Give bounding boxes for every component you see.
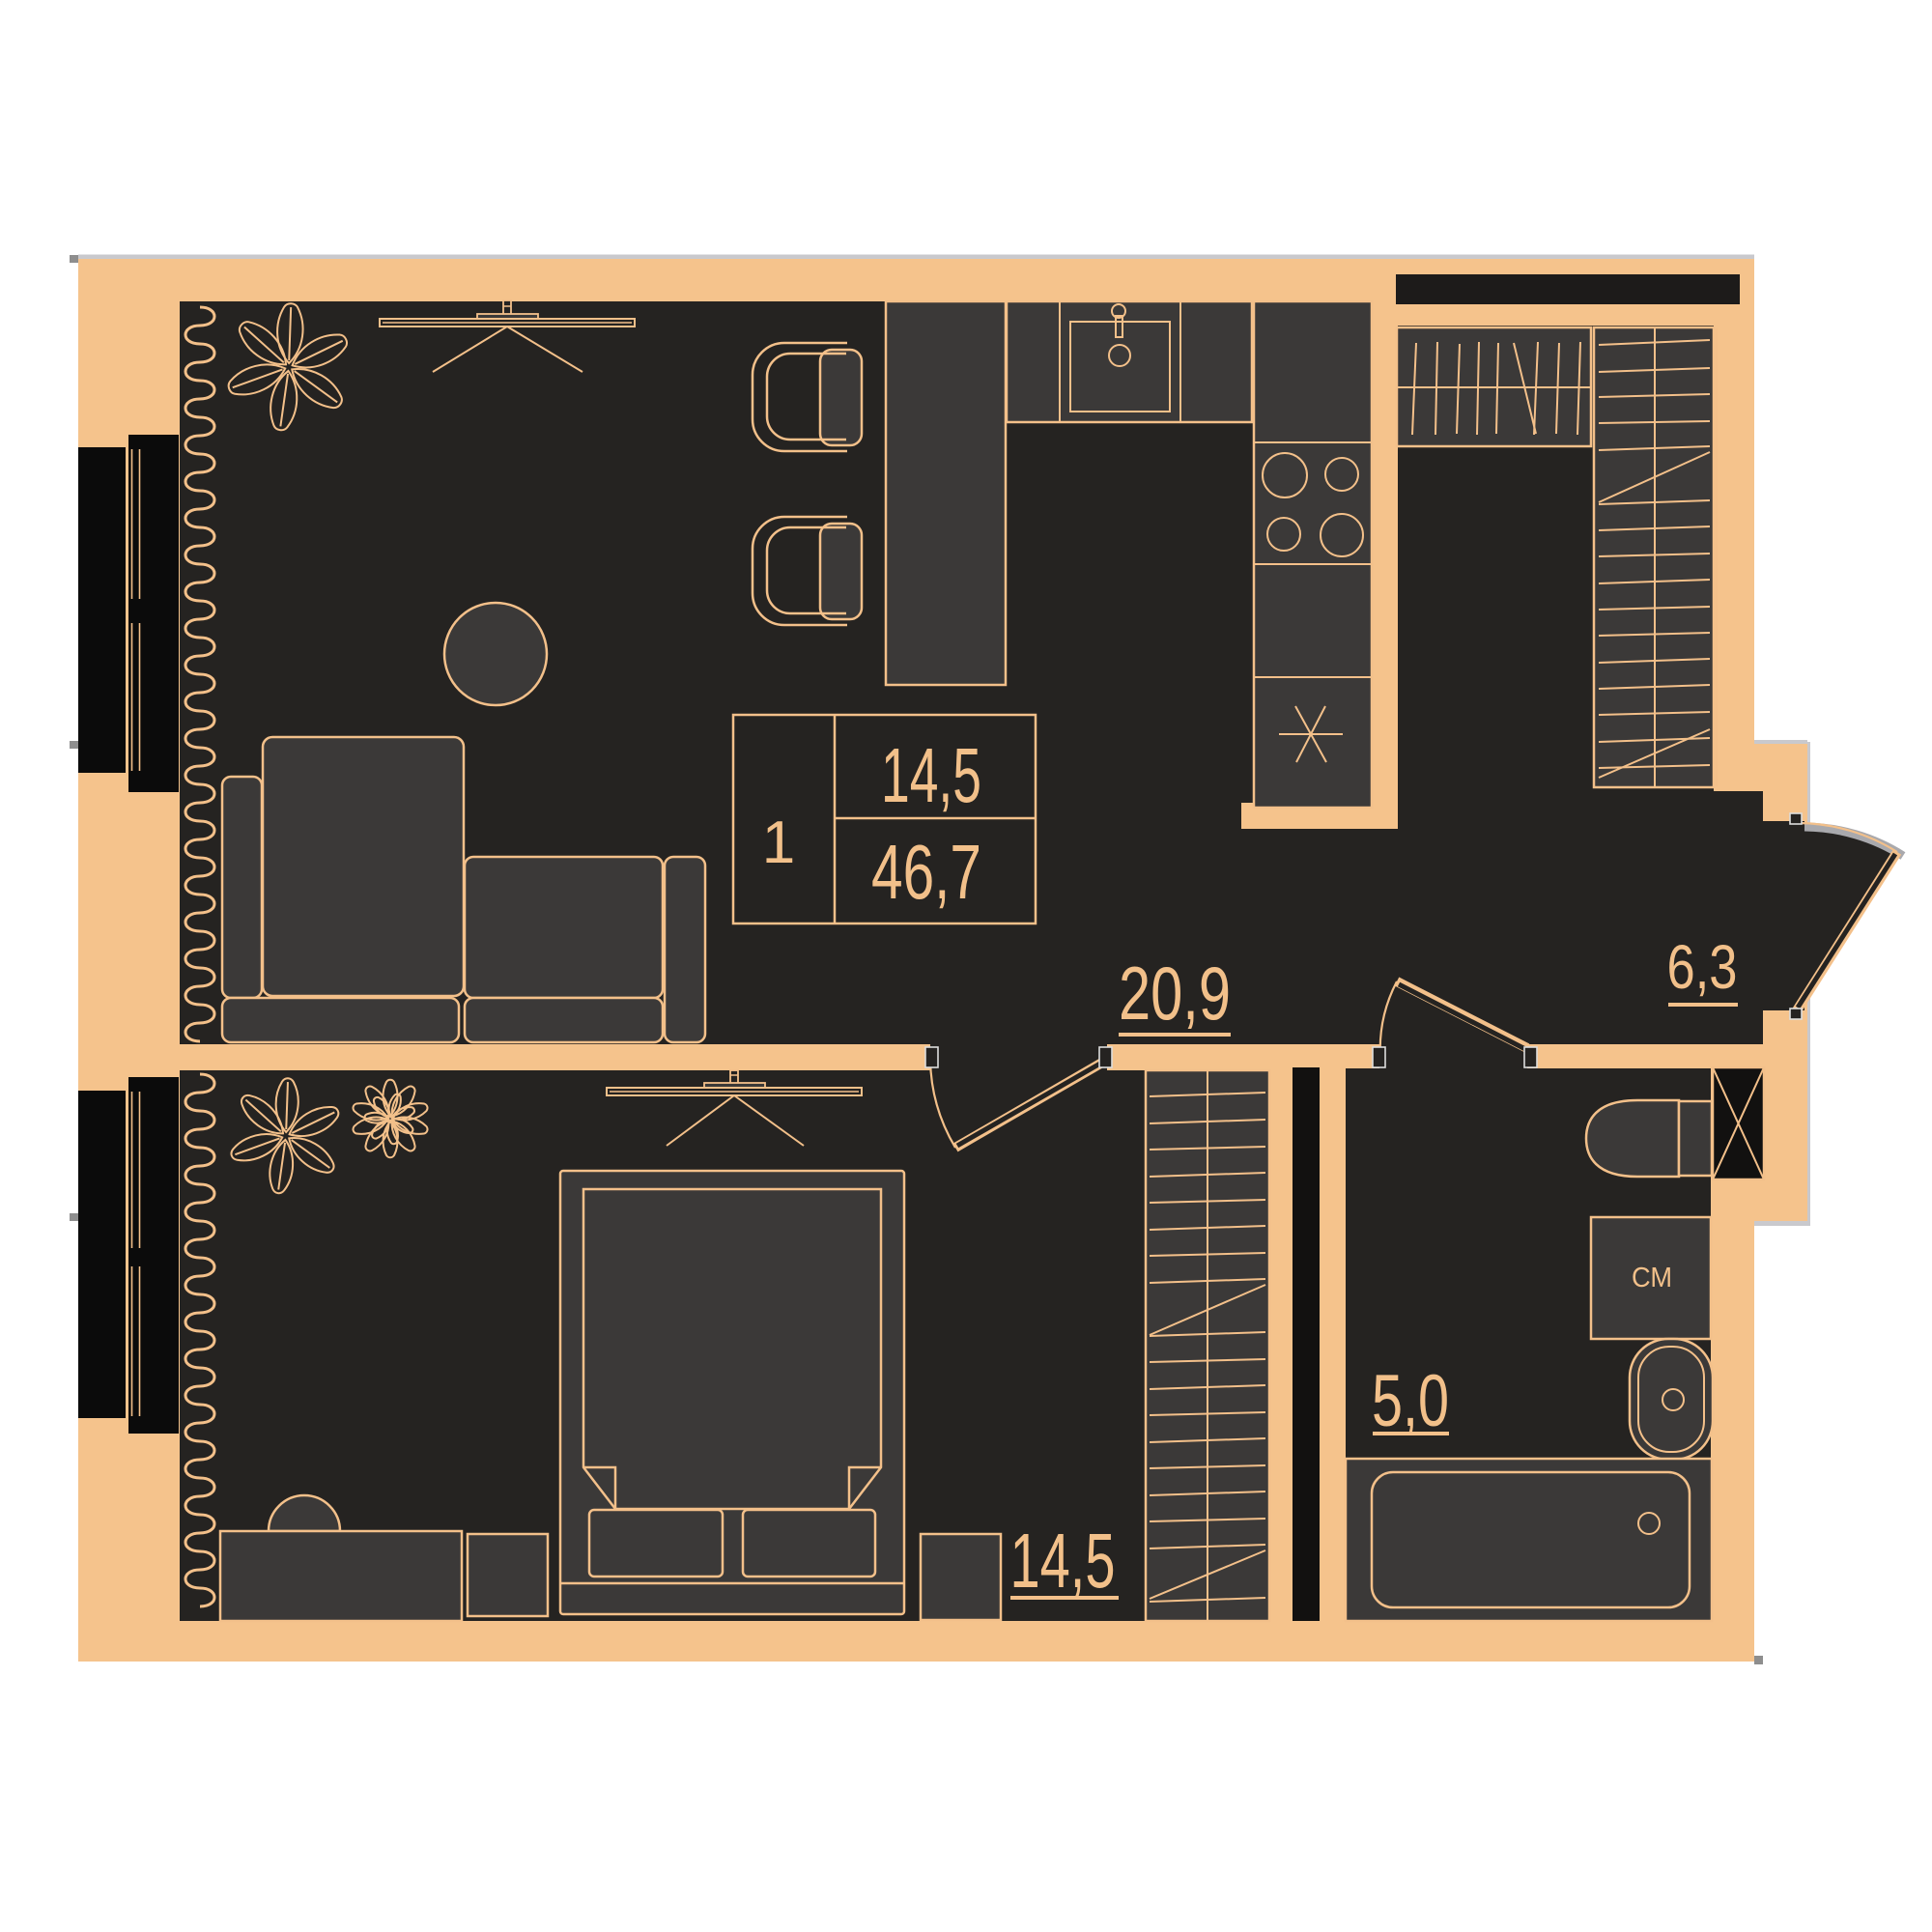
svg-text:6,3: 6,3 — [1667, 932, 1738, 1002]
svg-text:14,5: 14,5 — [881, 732, 981, 818]
svg-text:5,0: 5,0 — [1372, 1360, 1449, 1442]
svg-text:СМ: СМ — [1632, 1263, 1672, 1293]
svg-text:20,9: 20,9 — [1119, 951, 1231, 1036]
svg-text:1: 1 — [762, 810, 795, 876]
svg-text:14,5: 14,5 — [1010, 1518, 1116, 1604]
svg-text:46,7: 46,7 — [871, 829, 981, 915]
